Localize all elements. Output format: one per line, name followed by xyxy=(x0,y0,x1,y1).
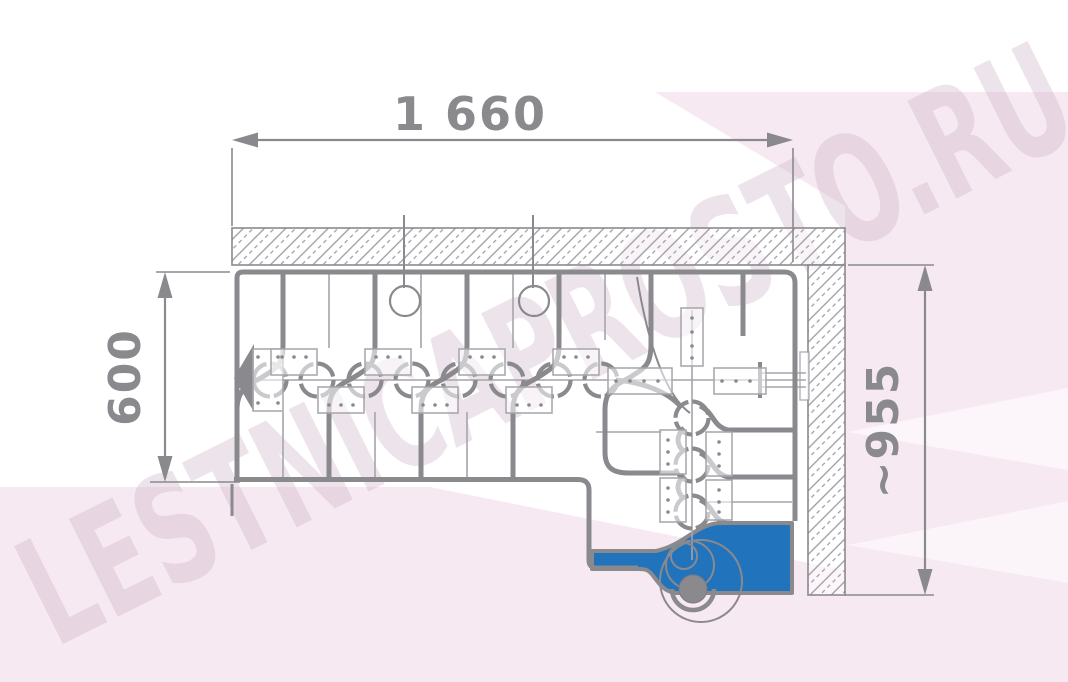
dimension-top-label: 1 660 xyxy=(393,87,547,141)
dimension-left-label: 600 xyxy=(100,328,151,426)
top-wall xyxy=(232,228,845,265)
dimension-right-label: ~955 xyxy=(858,362,909,499)
staircase-plan-drawing: LESTNICAPROSTO.RU xyxy=(0,0,1068,682)
drawing-svg: LESTNICAPROSTO.RU xyxy=(0,0,1068,682)
wall-mount-plate xyxy=(800,352,809,400)
right-wall xyxy=(808,265,845,595)
center-post xyxy=(679,575,707,603)
